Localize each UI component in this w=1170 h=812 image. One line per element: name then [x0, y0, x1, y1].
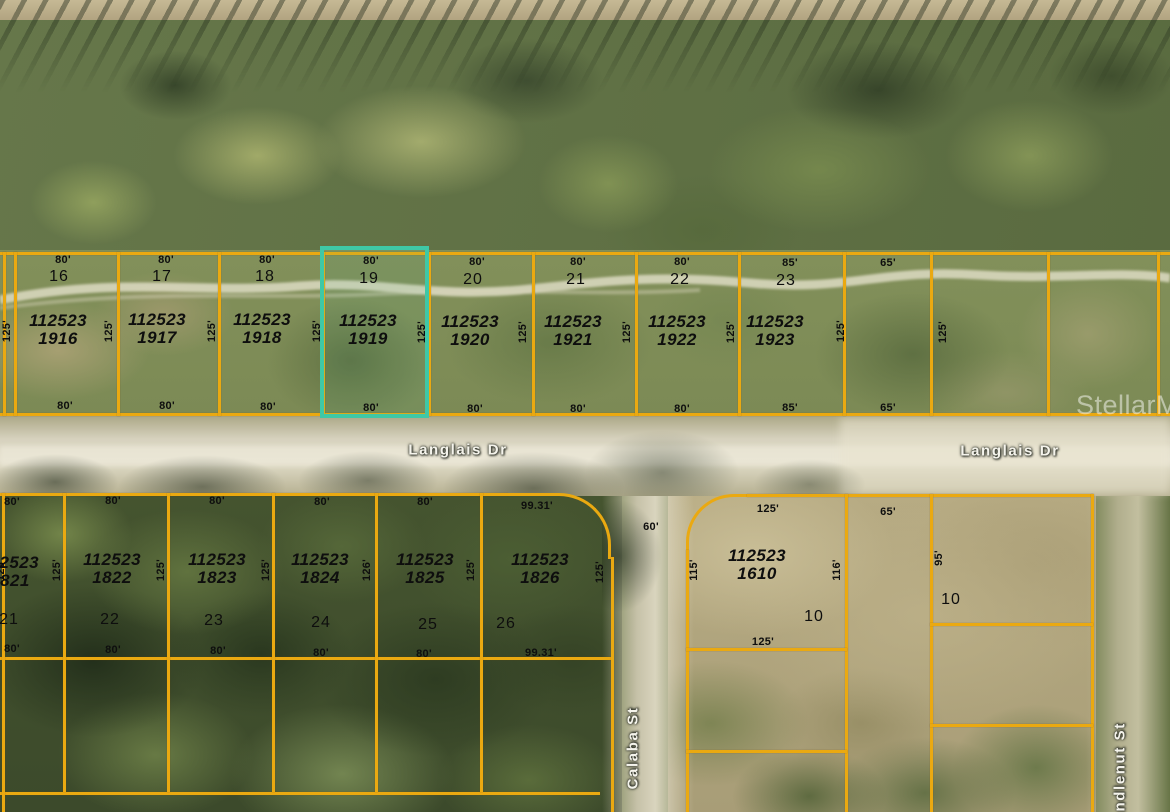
parcel-boundary-line — [930, 494, 933, 812]
dimension-label: 95' — [934, 550, 946, 566]
parcel-id-label: 112523 1826 — [511, 551, 569, 588]
lot-number: 23 — [204, 612, 224, 629]
dimension-label: 99.31' — [521, 501, 553, 513]
parcel-boundary-line — [611, 557, 614, 812]
dimension-label: 80' — [467, 404, 483, 416]
parcel-id-label: 112523 1824 — [291, 551, 349, 588]
lot-number: 21 — [0, 611, 19, 628]
lot-number: 10 — [941, 591, 961, 608]
parcel-id-label: 112523 1610 — [728, 547, 786, 584]
parcel-boundary-line — [375, 493, 378, 792]
dimension-label: 125' — [518, 321, 530, 343]
lot-number: 20 — [463, 271, 483, 288]
dimension-label: 99.31' — [525, 648, 557, 660]
aerial-tree-shadows-top — [0, 0, 1170, 92]
lot-number: 17 — [152, 268, 172, 285]
dimension-label: 80' — [210, 646, 226, 658]
dimension-label: 125' — [836, 320, 848, 342]
watermark: StellarMLS — [1076, 390, 1170, 421]
parcel-id-label: 112523 1917 — [128, 311, 186, 348]
dimension-label: 80' — [363, 256, 379, 268]
dimension-label: 125' — [52, 559, 64, 581]
dimension-label: 125' — [595, 561, 607, 583]
dimension-label: 80' — [55, 255, 71, 267]
parcel-id-label: 112523 1922 — [648, 313, 706, 350]
dimension-label: 65' — [880, 258, 896, 270]
dimension-label: 125' — [757, 504, 779, 516]
dimension-label: 80' — [158, 255, 174, 267]
parcel-boundary-line — [686, 550, 689, 812]
lot-number: 10 — [804, 608, 824, 625]
parcel-boundary-line — [0, 252, 1170, 255]
parcel-boundary-line — [532, 252, 535, 416]
lot-number: 25 — [418, 616, 438, 633]
parcel-boundary-line — [930, 252, 933, 416]
dimension-label: 80' — [313, 648, 329, 660]
lot-number: 22 — [100, 611, 120, 628]
parcel-boundary-line — [930, 724, 1093, 727]
lot-number: 24 — [311, 614, 331, 631]
parcel-id-label: 112523 1919 — [339, 312, 397, 349]
dimension-label: 125' — [752, 637, 774, 649]
dimension-label: 125' — [104, 320, 116, 342]
lot-number: 16 — [49, 268, 69, 285]
dimension-label: 80' — [105, 496, 121, 508]
street-label: Langlais Dr — [408, 442, 507, 459]
dimension-label: 125' — [417, 321, 429, 343]
parcel-boundary-line — [930, 623, 1093, 626]
parcel-boundary-line — [1047, 252, 1050, 416]
dimension-label: 125' — [726, 321, 738, 343]
dimension-label: 65' — [880, 507, 896, 519]
dimension-label: 80' — [314, 497, 330, 509]
lot-number: 23 — [776, 272, 796, 289]
dimension-label: 60' — [643, 522, 659, 534]
parcel-id-label: 112523 1825 — [396, 551, 454, 588]
dimension-label: 80' — [105, 645, 121, 657]
dimension-label: 80' — [57, 401, 73, 413]
dimension-label: 80' — [209, 496, 225, 508]
parcel-boundary-line — [635, 252, 638, 416]
dimension-label: 125' — [2, 320, 14, 342]
parcel-id-label: 112523 1923 — [746, 313, 804, 350]
parcel-id-label: 112523 1918 — [233, 311, 291, 348]
parcel-boundary-line — [272, 493, 275, 792]
parcel-id-label: 112523 1920 — [441, 313, 499, 350]
parcel-boundary-line — [117, 252, 120, 416]
parcel-boundary-line — [0, 657, 612, 660]
dimension-label: 80' — [4, 644, 20, 656]
street-label: Calaba St — [625, 707, 642, 790]
dimension-label: 125' — [622, 321, 634, 343]
dimension-label: 85' — [782, 258, 798, 270]
lot-number: 22 — [670, 271, 690, 288]
parcel-boundary-line — [14, 252, 17, 416]
dimension-label: 80' — [570, 404, 586, 416]
dimension-label: 115' — [689, 559, 701, 581]
dimension-label: 80' — [4, 497, 20, 509]
parcel-boundary-line — [0, 792, 600, 795]
lot-number: 18 — [255, 268, 275, 285]
aerial-parcel-map: 80'80'80'80'80'80'80'85'65'1617181920212… — [0, 0, 1170, 812]
dimension-label: 80' — [159, 401, 175, 413]
dimension-label: 125' — [156, 559, 168, 581]
parcel-id-label: 112523 1916 — [29, 312, 87, 349]
parcel-boundary-line — [686, 750, 847, 753]
dimension-label: 80' — [416, 649, 432, 661]
dimension-label: 80' — [260, 402, 276, 414]
dimension-label: 80' — [674, 257, 690, 269]
dimension-label: 125' — [207, 320, 219, 342]
parcel-id-label: 112523 1921 — [544, 313, 602, 350]
parcel-boundary-line — [747, 494, 1093, 497]
parcel-boundary-line — [167, 493, 170, 792]
dimension-label: 126' — [362, 559, 374, 581]
dimension-label: 125' — [466, 559, 478, 581]
parcel-boundary-line — [63, 493, 66, 792]
dimension-label: 80' — [570, 257, 586, 269]
parcel-id-label: 112523 1822 — [83, 551, 141, 588]
lot-number: 26 — [496, 615, 516, 632]
street-label: Langlais Dr — [960, 443, 1059, 460]
parcel-boundary-line — [1091, 494, 1094, 812]
lot-number: 21 — [566, 271, 586, 288]
dimension-label: 80' — [363, 403, 379, 415]
parcel-boundary-line — [480, 493, 483, 792]
dimension-label: 125' — [938, 321, 950, 343]
parcel-boundary-line — [845, 494, 848, 812]
lot-number: 19 — [359, 270, 379, 287]
dimension-label: 80' — [417, 497, 433, 509]
dimension-label: 80' — [674, 404, 690, 416]
dimension-label: 125' — [261, 559, 273, 581]
dimension-label: 80' — [469, 257, 485, 269]
street-label: Candlenut St — [1112, 722, 1129, 812]
dimension-label: 125' — [312, 320, 324, 342]
dimension-label: 65' — [880, 403, 896, 415]
dimension-label: 85' — [782, 403, 798, 415]
dimension-label: 116' — [832, 559, 844, 581]
dimension-label: 80' — [259, 255, 275, 267]
parcel-id-label: 112523 1823 — [188, 551, 246, 588]
parcel-boundary-line — [738, 252, 741, 416]
dimension-label: 125' — [0, 559, 8, 581]
